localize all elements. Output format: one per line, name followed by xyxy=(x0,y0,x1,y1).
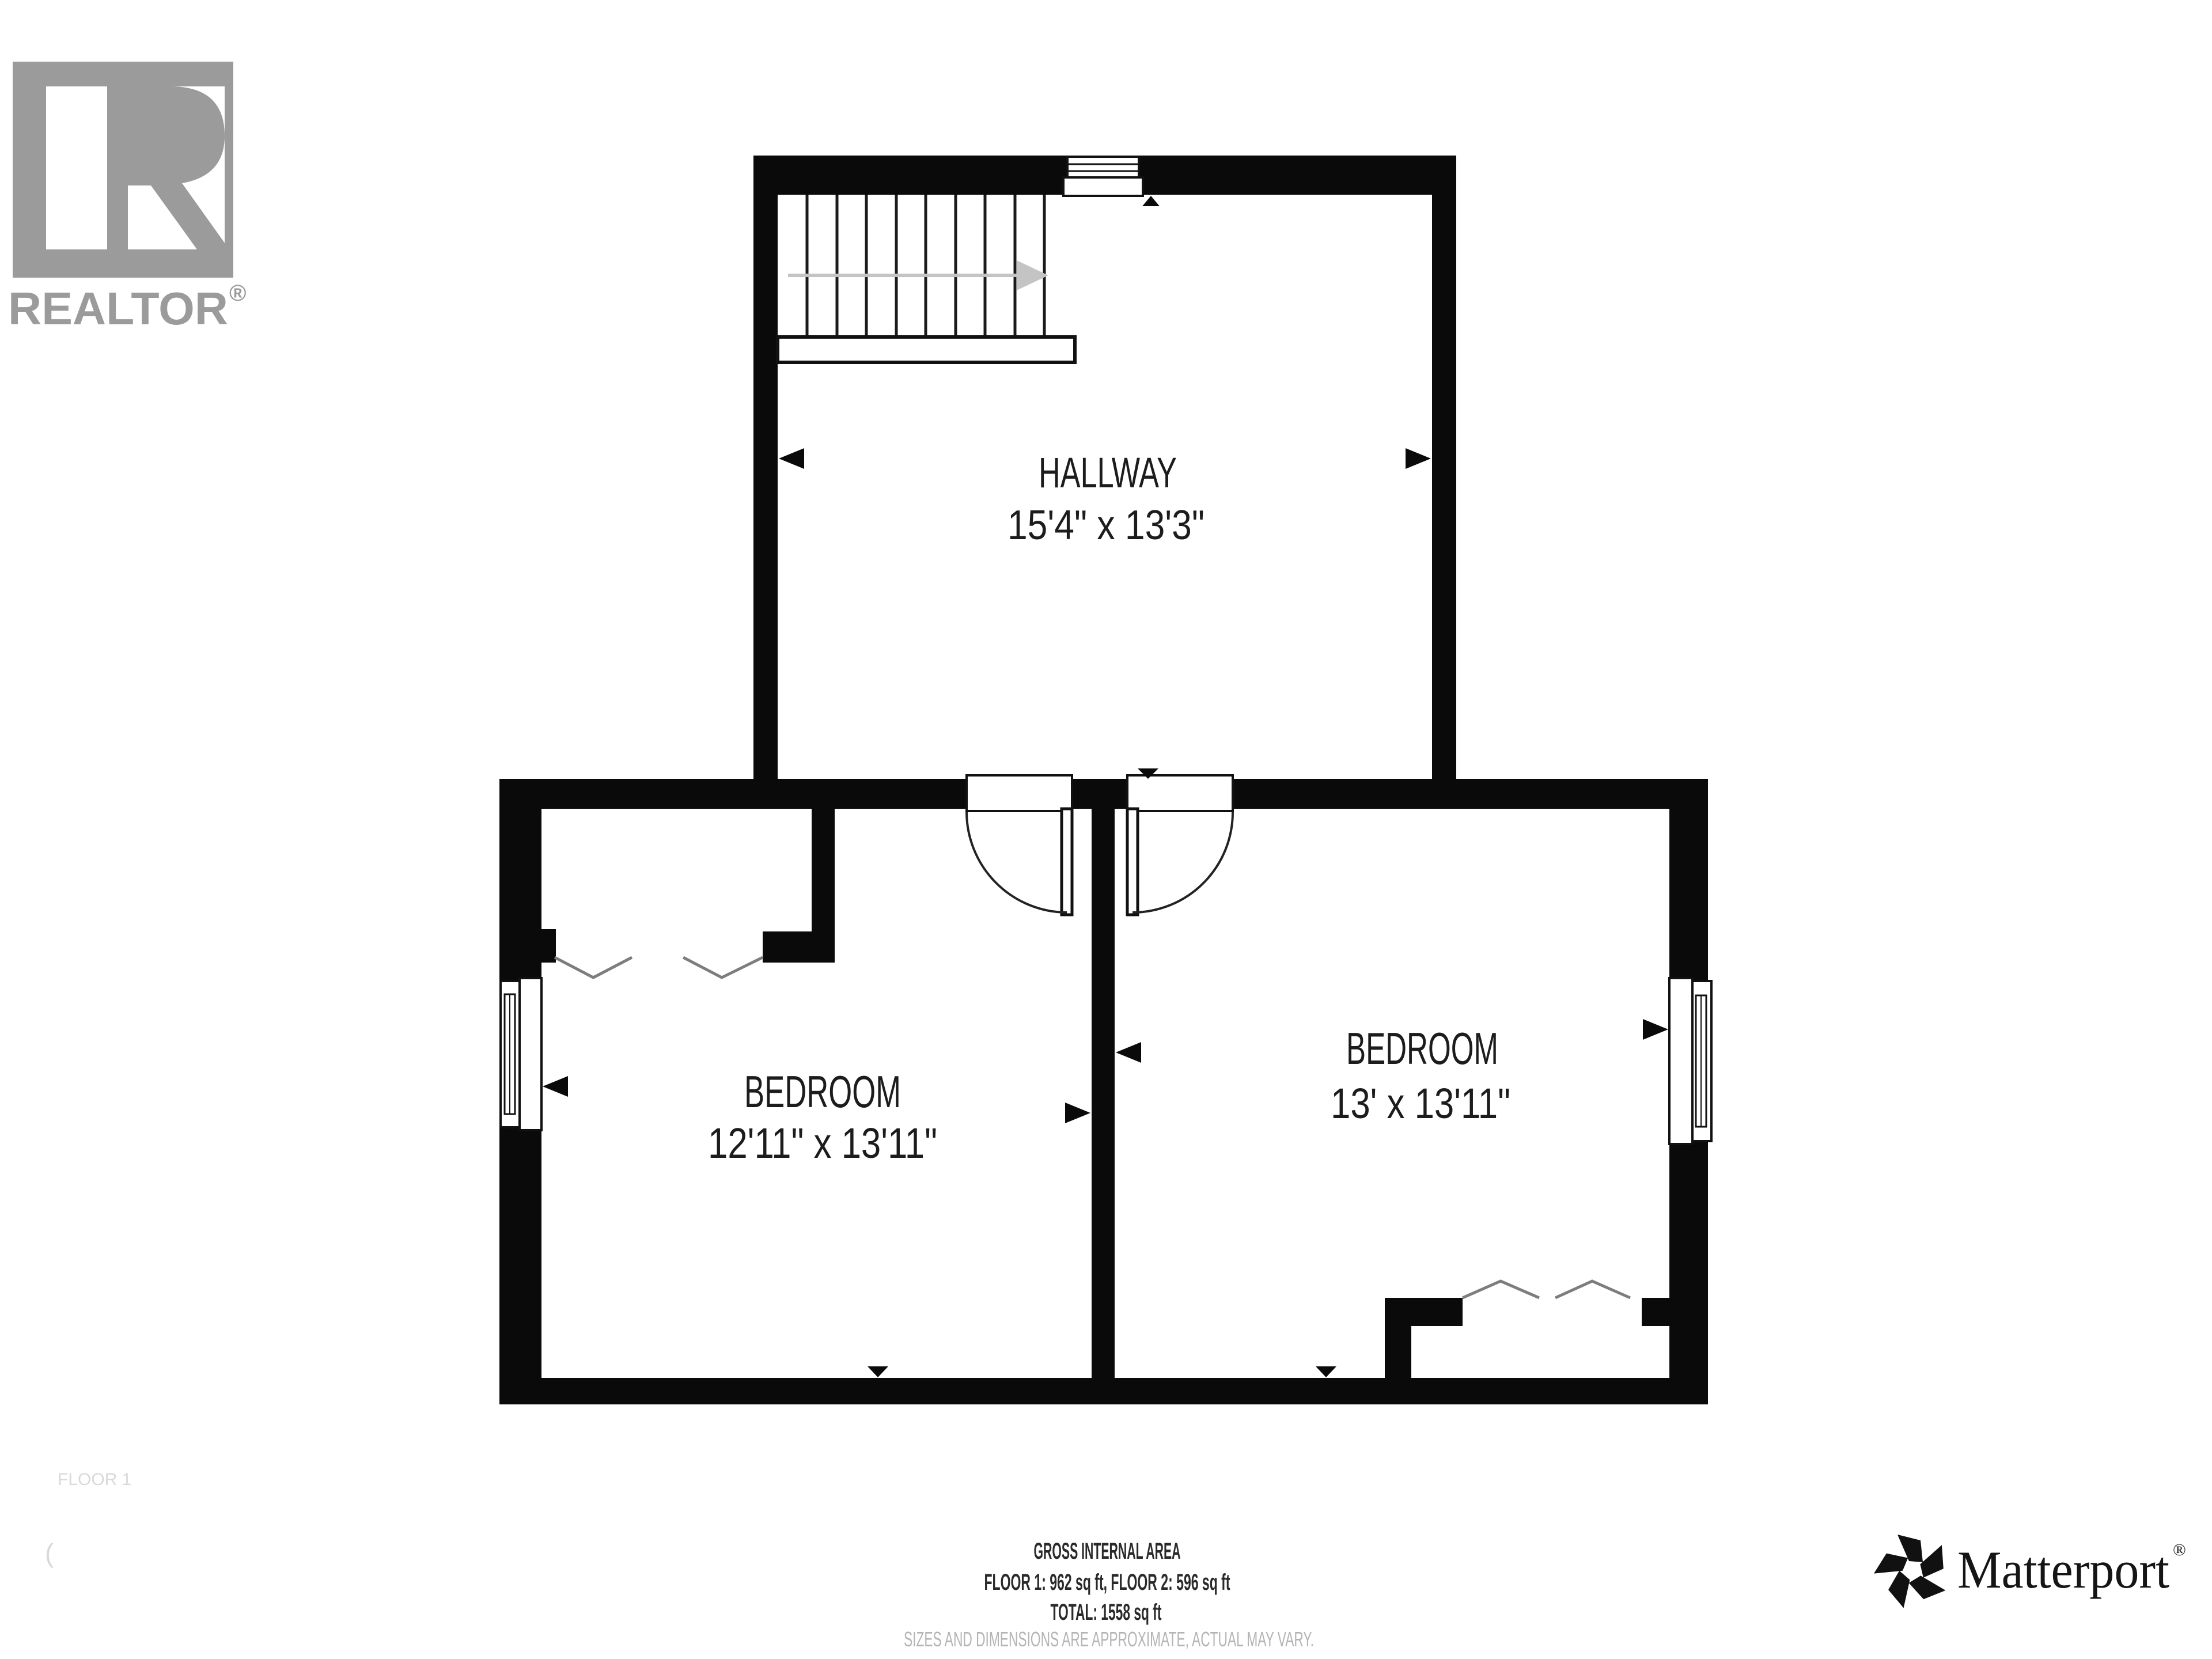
marker-down-icon xyxy=(868,1366,888,1377)
left-bedroom-window xyxy=(501,978,541,1130)
right-door-leaf xyxy=(1127,809,1138,915)
right-door-opening xyxy=(1127,775,1233,811)
closet-right-top-wall xyxy=(1385,1298,1463,1326)
left-door-swing-arc xyxy=(967,812,1067,912)
faint-floor-label: FLOOR 1 xyxy=(58,1470,131,1489)
faint-paren: ( xyxy=(45,1538,54,1568)
realtor-logo: REALTOR ® xyxy=(8,62,246,334)
hallway-label: HALLWAY xyxy=(1039,449,1177,497)
matterport-icon xyxy=(1874,1535,1950,1608)
marker-left-icon xyxy=(1116,1042,1141,1063)
right-bedroom-window xyxy=(1669,978,1711,1144)
closet-left-foot-wall xyxy=(763,931,812,963)
marker-down-icon xyxy=(1316,1366,1336,1377)
bedrooms-top-wall xyxy=(499,779,1708,809)
left-door-opening xyxy=(967,775,1072,811)
marker-right-icon xyxy=(1406,448,1431,469)
right-door-swing-arc xyxy=(1132,812,1233,912)
marker-up-icon xyxy=(1142,196,1160,206)
bedroom-divider-wall xyxy=(1092,809,1115,1404)
closet-right-vertical-wall xyxy=(1385,1326,1411,1378)
marker-right-icon xyxy=(1065,1103,1090,1123)
realtor-registered-icon: ® xyxy=(229,281,246,306)
left-bedroom-door xyxy=(967,775,1072,915)
closet-left-nub-wall xyxy=(540,929,556,963)
marker-right-icon xyxy=(1643,1019,1668,1040)
floor-plan-canvas: REALTOR ® xyxy=(0,0,2212,1659)
right-bedroom-label: BEDROOM xyxy=(1346,1023,1498,1074)
gross-area-disclaimer: SIZES AND DIMENSIONS ARE APPROXIMATE, AC… xyxy=(904,1627,1314,1651)
hallway-window xyxy=(1063,157,1143,196)
marker-left-icon xyxy=(779,448,804,469)
matterport-wordmark: Matterport xyxy=(1957,1540,2169,1599)
left-window-sill xyxy=(520,978,541,1130)
matterport-registered-icon: ® xyxy=(2173,1540,2186,1559)
gross-area-title: GROSS INTERNAL AREA xyxy=(1034,1539,1181,1564)
walls xyxy=(499,156,1708,1404)
gross-area-floors: FLOOR 1: 962 sq ft, FLOOR 2: 596 sq ft xyxy=(984,1570,1230,1595)
realtor-wordmark: REALTOR xyxy=(8,283,228,334)
stair-handrail xyxy=(778,337,1075,362)
right-bedroom-dimensions: 13' x 13'11" xyxy=(1331,1080,1510,1127)
marker-left-icon xyxy=(543,1076,568,1097)
hallway-left-wall xyxy=(753,156,778,779)
right-bedroom-door xyxy=(1127,775,1233,915)
hallway-dimensions: 15'4" x 13'3" xyxy=(1007,502,1205,548)
right-window-sill xyxy=(1669,978,1692,1144)
closet-right-nub-wall xyxy=(1642,1298,1669,1326)
faint-watermark: FLOOR 1 ( xyxy=(45,1470,131,1568)
matterport-logo: Matterport ® xyxy=(1874,1535,2186,1608)
hallway-right-wall xyxy=(1432,156,1456,779)
gross-internal-area-block: GROSS INTERNAL AREA FLOOR 1: 962 sq ft, … xyxy=(904,1539,1314,1651)
left-bedroom-label: BEDROOM xyxy=(744,1066,901,1117)
closet-left-vertical-wall xyxy=(812,809,835,963)
hallway-window-sill xyxy=(1063,177,1143,196)
staircase xyxy=(778,195,1075,362)
left-bedroom-dimensions: 12'11" x 13'11" xyxy=(708,1119,937,1167)
left-door-leaf xyxy=(1062,809,1072,915)
gross-area-total: TOTAL: 1558 sq ft xyxy=(1051,1600,1162,1625)
